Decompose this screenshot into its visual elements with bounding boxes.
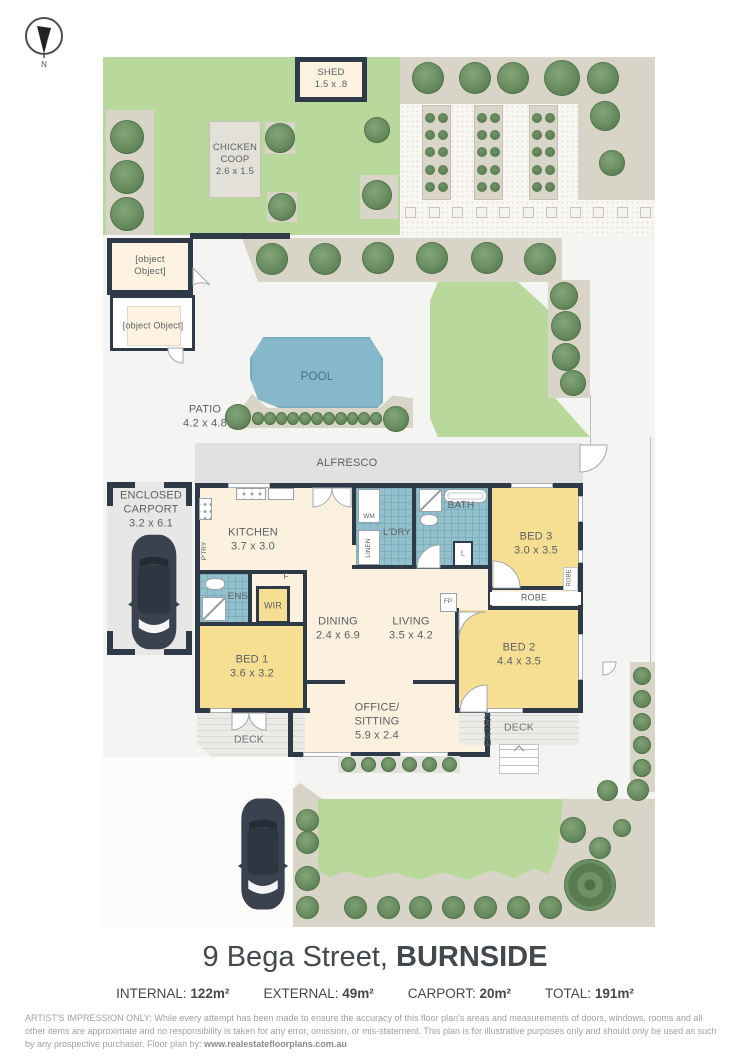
shower-icon (419, 489, 442, 512)
deck-right-label: DECK (504, 721, 534, 734)
bottom-bush-row (344, 896, 562, 920)
tree-icon (524, 243, 556, 275)
tree-icon (295, 866, 320, 891)
carport-label: ENCLOSED CARPORT 3.2 x 6.1 (106, 489, 196, 530)
address-title: 9 Bega Street, BURNSIDE (0, 941, 750, 974)
pool-label: POOL (301, 370, 334, 384)
tree-icon (309, 243, 341, 275)
patio-label: PATIO4.2 x 4.8 (183, 403, 227, 431)
tree-icon (627, 779, 649, 801)
window (578, 496, 583, 522)
tree-icon (613, 819, 631, 837)
disclaimer-link: www.realestatefloorplans.com.au (204, 1039, 347, 1049)
workshop-label: [object Object] (118, 320, 188, 331)
wall (107, 631, 113, 655)
tree-icon (362, 180, 392, 210)
wall (352, 483, 356, 545)
cooktop-icon (199, 498, 212, 520)
living-label: LIVING3.5 x 4.2 (389, 615, 433, 643)
wall (288, 708, 293, 757)
fridge-label: F (283, 572, 288, 582)
wir-label: WIR (264, 600, 282, 611)
garden-bed (474, 105, 503, 200)
linen-label: LINEN (365, 538, 373, 557)
tree-icon (587, 62, 619, 94)
driveway (103, 757, 295, 927)
deck-left-label: DECK (234, 733, 264, 746)
linen-small-label: L (461, 548, 465, 557)
tree-icon (225, 404, 251, 430)
tree-icon (383, 406, 409, 432)
garden-bed (529, 105, 558, 200)
tree-icon (268, 193, 296, 221)
stat-external: EXTERNAL: 49m² (263, 986, 373, 1001)
wall (307, 680, 345, 684)
large-tree-icon (564, 859, 616, 911)
ens-label: ENS (228, 591, 248, 603)
pump-house-label: [object Object] (121, 254, 179, 278)
bed2-label: BED 24.4 x 3.5 (497, 641, 541, 669)
wm-label: WM (363, 513, 375, 521)
shed-label: SHED1.5 x .8 (315, 67, 348, 91)
sink-icon (268, 488, 294, 500)
robe-bed3-label: ROBE (566, 569, 574, 586)
disclaimer: ARTIST'S IMPRESSION ONLY: While every at… (25, 1012, 725, 1051)
fence (590, 395, 591, 445)
side-bush-col (633, 667, 651, 777)
tree-icon (110, 160, 144, 194)
kitchen-label: KITCHEN3.7 x 3.0 (228, 526, 278, 554)
toilet-icon (420, 514, 438, 526)
office-label: OFFICE/ SITTING 5.9 x 2.4 (341, 701, 413, 742)
tree-icon (265, 123, 295, 153)
tree-icon (589, 837, 611, 859)
laundry-label: L'DRY (383, 527, 411, 539)
tree-icon (552, 343, 580, 371)
wall (248, 570, 252, 626)
tree-icon (471, 242, 503, 274)
shower-icon (202, 597, 226, 621)
window (511, 483, 553, 488)
area-stats: INTERNAL: 122m² EXTERNAL: 49m² CARPORT: … (0, 986, 750, 1001)
paver-row (405, 207, 651, 219)
wall (186, 631, 192, 655)
tree-icon (110, 197, 144, 231)
stat-internal: INTERNAL: 122m² (116, 986, 229, 1001)
tree-icon (362, 242, 394, 274)
tree-icon (416, 242, 448, 274)
fireplace-label: FP (444, 598, 452, 606)
chicken-coop-label: CHICKEN COOP 2.6 x 1.5 (209, 142, 261, 178)
tree-icon (544, 60, 580, 96)
tree-icon (110, 120, 144, 154)
front-bush-row (341, 757, 457, 772)
stove-icon (236, 488, 266, 500)
tree-icon (296, 809, 319, 832)
pantry-label: P'TRY (201, 542, 209, 560)
garden-border-mid (242, 238, 562, 282)
alfresco-label: ALFRESCO (317, 457, 378, 471)
address-suburb: BURNSIDE (396, 941, 547, 973)
compass-north-label: N (41, 60, 47, 69)
stat-carport: CARPORT: 20m² (408, 986, 511, 1001)
tree-icon (597, 780, 618, 801)
window (578, 550, 583, 563)
toilet-icon (205, 578, 225, 590)
wall (455, 608, 459, 713)
stat-total: TOTAL: 191m² (545, 986, 634, 1001)
tree-icon (599, 150, 625, 176)
address-street: 9 Bega Street, (203, 941, 396, 973)
alfresco-area (195, 443, 583, 483)
wall (412, 483, 416, 569)
tree-icon (296, 896, 319, 919)
wall (413, 680, 458, 684)
tree-icon (560, 817, 586, 843)
pool-bush-row (252, 412, 382, 425)
tree-icon (364, 117, 390, 143)
bath-label: BATH (448, 500, 475, 513)
tree-icon (590, 101, 620, 131)
dining-label: DINING2.4 x 6.9 (316, 615, 360, 643)
tree-icon (412, 62, 444, 94)
bed1-label: BED 13.6 x 3.2 (230, 653, 274, 681)
wall (488, 483, 492, 610)
disclaimer-prefix: ARTIST'S IMPRESSION ONLY: (25, 1013, 152, 1023)
tree-icon (551, 311, 581, 341)
wall (303, 570, 307, 713)
entry-label: ENTRY (483, 712, 496, 747)
tree-icon (256, 243, 288, 275)
window (210, 708, 232, 713)
tree-icon (560, 370, 586, 396)
stairs (499, 744, 539, 774)
floor-plan-page: N SHED1.5 x .8 CHICKEN COOP 2.6 x 1.5 (0, 0, 750, 1060)
window (578, 634, 583, 680)
wall (190, 233, 290, 239)
tree-icon (459, 62, 491, 94)
tree-icon (497, 62, 529, 94)
tree-icon (296, 831, 319, 854)
compass-icon: N (20, 11, 68, 69)
tree-icon (550, 282, 578, 310)
garden-bed (422, 105, 451, 200)
wall (488, 606, 583, 610)
bed3-label: BED 33.0 x 3.5 (514, 530, 558, 558)
robe-bed2-label: ROBE (521, 592, 547, 603)
